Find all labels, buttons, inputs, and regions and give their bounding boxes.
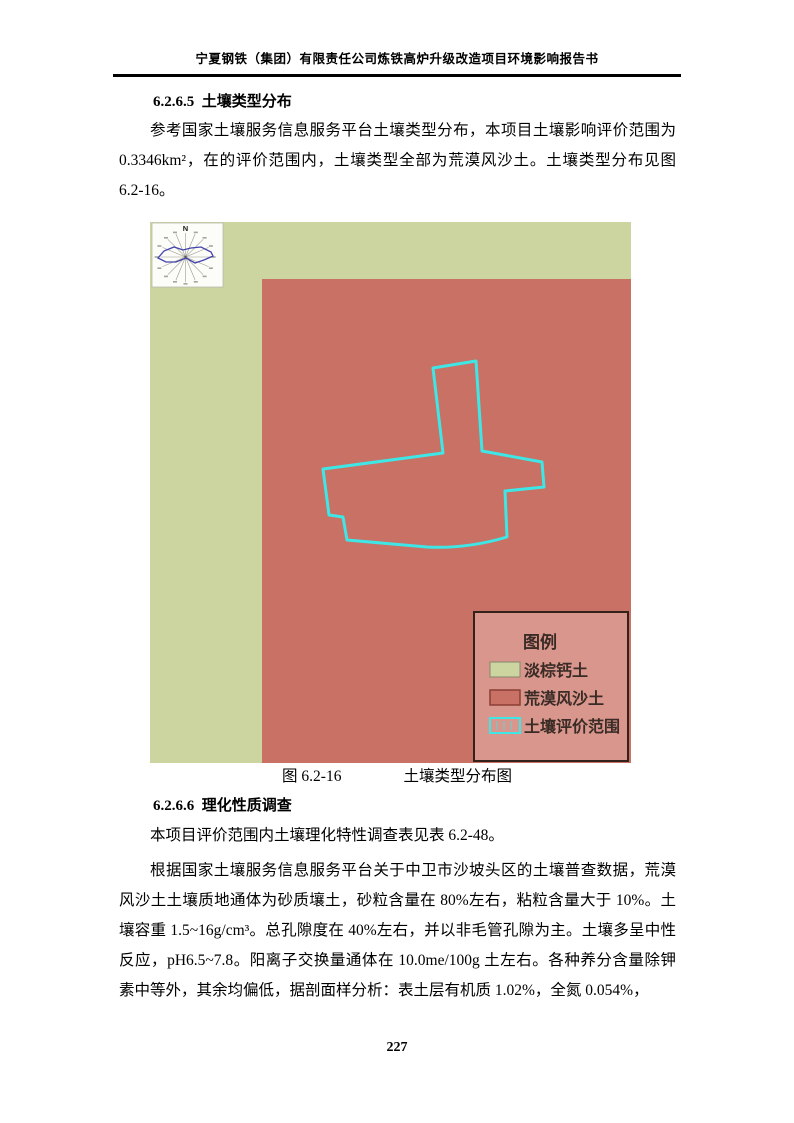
paragraph-soil-type-overview: 参考国家土壤服务信息服务平台土壤类型分布，本项目土壤影响评价范围为 0.3346… xyxy=(119,116,676,206)
paragraph-survey-table-reference: 本项目评价范围内土壤理化特性调查表见表 6.2-48。 xyxy=(119,821,676,851)
legend-label-light-brown-calcium-soil: 淡棕钙土 xyxy=(524,661,588,680)
paragraph-soil-physicochemical-properties: 根据国家土壤服务信息服务平台关于中卫市沙坡头区的土壤普查数据，荒漠风沙土土壤质地… xyxy=(119,856,676,1006)
legend-swatch-light-brown-calcium-soil xyxy=(490,662,520,677)
compass-center-dot xyxy=(184,256,186,258)
soil-type-distribution-map: N 图例 淡棕钙土 荒漠风沙土 土壤评价范围 xyxy=(150,222,631,763)
figure-caption-number: 图 6.2-16 xyxy=(282,766,341,788)
section-heading-6-2-6-6: 6.2.6.6 理化性质调查 xyxy=(153,795,292,817)
document-page: 宁夏钢铁（集团）有限责任公司炼铁高炉升级改造项目环境影响报告书 6.2.6.5 … xyxy=(0,0,794,1123)
header-divider xyxy=(113,74,681,77)
legend-swatch-desert-wind-sand-soil xyxy=(490,690,520,705)
map-legend: 图例 淡棕钙土 荒漠风沙土 土壤评价范围 xyxy=(474,612,628,761)
legend-title: 图例 xyxy=(523,632,557,652)
page-number: 227 xyxy=(0,1038,794,1058)
compass-north-label: N xyxy=(183,224,188,233)
figure-caption: 图 6.2-16 土壤类型分布图 xyxy=(0,766,794,788)
legend-label-soil-evaluation-boundary: 土壤评价范围 xyxy=(524,717,620,736)
legend-label-desert-wind-sand-soil: 荒漠风沙土 xyxy=(523,689,604,708)
section-heading-6-2-6-5: 6.2.6.5 土壤类型分布 xyxy=(153,91,292,113)
figure-caption-title: 土壤类型分布图 xyxy=(403,766,512,788)
map-canvas: N 图例 淡棕钙土 荒漠风沙土 土壤评价范围 xyxy=(150,222,631,763)
report-header-title: 宁夏钢铁（集团）有限责任公司炼铁高炉升级改造项目环境影响报告书 xyxy=(0,48,794,67)
wind-rose-compass: N xyxy=(152,223,223,287)
